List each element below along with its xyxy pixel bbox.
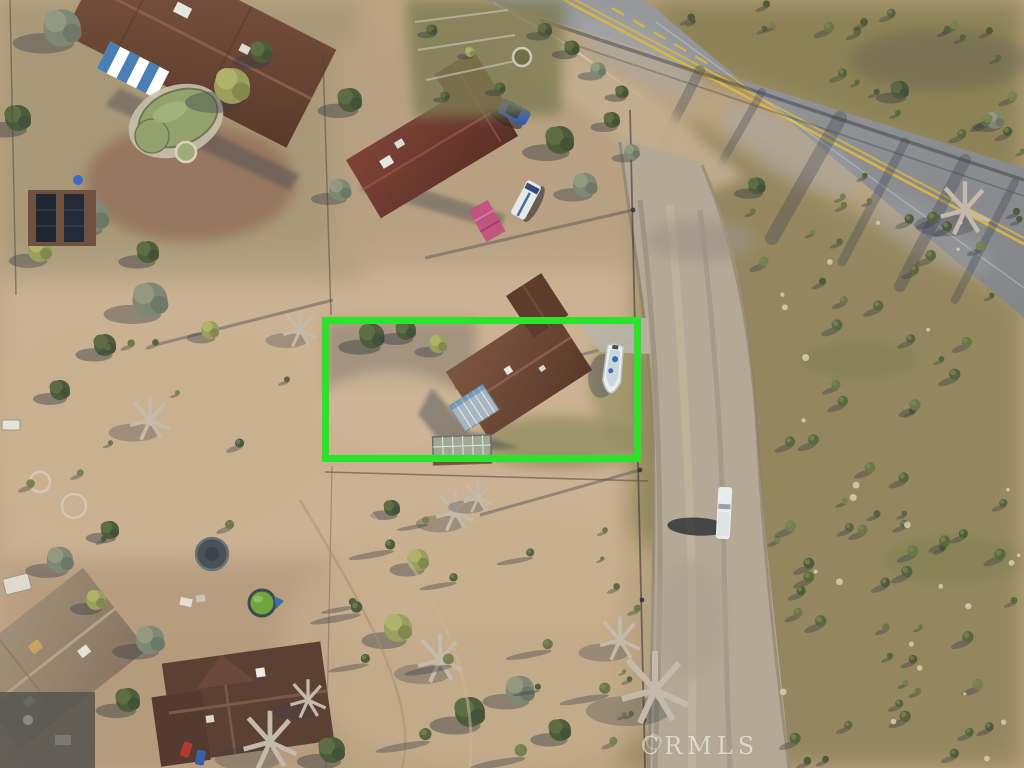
- stone-planter-ring: [513, 48, 531, 66]
- aerial-photo: CRMLS: [0, 0, 1024, 768]
- chimney: [255, 667, 265, 677]
- trampoline: [196, 538, 228, 570]
- spa: [176, 142, 196, 162]
- blue-car: [73, 175, 83, 185]
- greenhouse: [433, 435, 492, 465]
- aerial-photo-canvas: [0, 0, 1024, 768]
